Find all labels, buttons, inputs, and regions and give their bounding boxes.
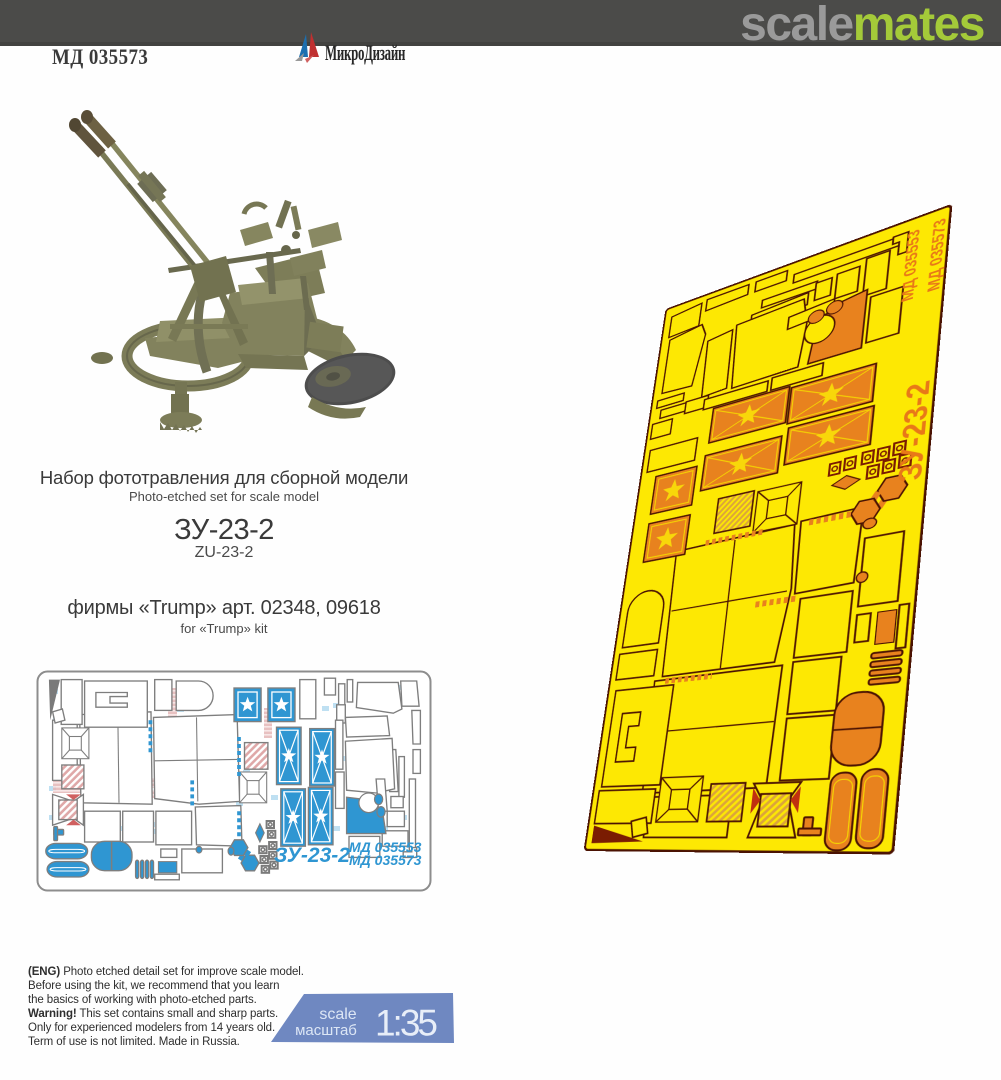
svg-text:1:35: 1:35 (375, 1003, 437, 1044)
svg-text:scale: scale (319, 1006, 356, 1023)
svg-text:МД 035573: МД 035573 (349, 852, 422, 868)
svg-text:масштаб: масштаб (295, 1022, 357, 1039)
svg-text:ЗУ-23-2: ЗУ-23-2 (274, 844, 350, 867)
